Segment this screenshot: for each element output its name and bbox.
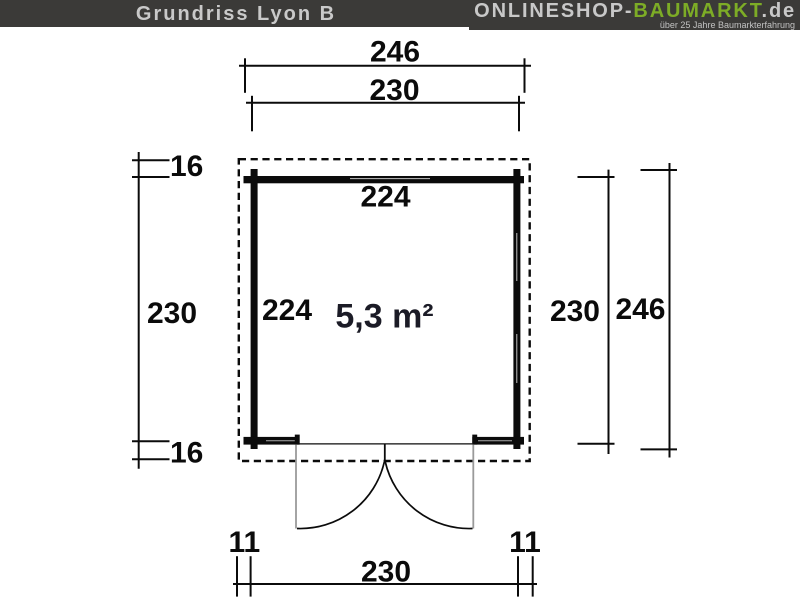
svg-text:11: 11 [228, 526, 260, 559]
svg-text:16: 16 [170, 437, 203, 470]
svg-text:5,3 m²: 5,3 m² [335, 298, 433, 336]
svg-text:ONLINESHOP-BAUMARKT.de: ONLINESHOP-BAUMARKT.de [474, 0, 796, 22]
svg-text:224: 224 [360, 181, 410, 214]
svg-text:über 25 Jahre Baumarkterfahrun: über 25 Jahre Baumarkterfahrung [660, 20, 795, 30]
svg-text:230: 230 [550, 295, 600, 328]
svg-text:Grundriss Lyon B: Grundriss Lyon B [136, 3, 336, 25]
svg-text:11: 11 [509, 526, 541, 559]
svg-text:246: 246 [615, 293, 665, 326]
svg-text:230: 230 [147, 297, 197, 330]
svg-text:230: 230 [361, 556, 411, 589]
svg-text:246: 246 [370, 36, 420, 69]
svg-text:230: 230 [369, 74, 419, 107]
svg-text:224: 224 [262, 294, 312, 327]
svg-text:16: 16 [170, 150, 203, 183]
